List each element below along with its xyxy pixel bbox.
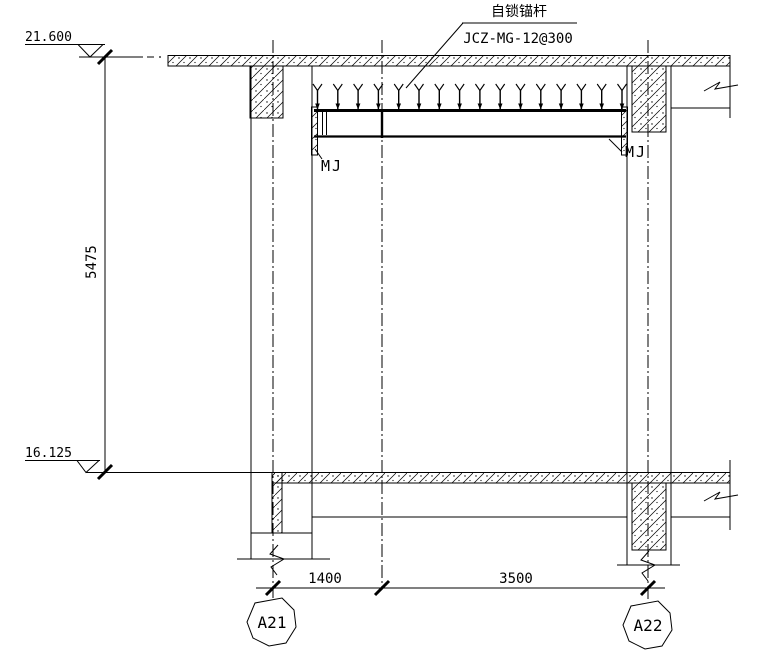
embed-plate-left	[312, 107, 318, 155]
grid-bubble-a21-label: A21	[258, 613, 287, 632]
grid-bubble-a21: A21	[247, 598, 296, 646]
right-downstand-bottom	[632, 483, 666, 550]
grid-bubble-a22-label: A22	[634, 616, 663, 635]
left-downstand	[250, 66, 283, 118]
anchor-name-label: 自锁锚杆	[491, 4, 547, 20]
drawing-sheet: 21.600 16.125 5475 1400 3500 A21 A22	[0, 0, 777, 652]
elevation-bottom-value: 16.125	[25, 446, 72, 461]
dimension-span-right: 3500	[499, 571, 533, 587]
grid-bubble-a22: A22	[623, 601, 672, 649]
right-downstand-top	[632, 66, 666, 132]
embed-plate-left-label: MJ	[321, 157, 343, 175]
vertical-dimension-value: 5475	[84, 245, 100, 279]
dimension-span-left: 1400	[308, 571, 342, 587]
section-detail-drawing: 21.600 16.125 5475 1400 3500 A21 A22	[0, 0, 777, 652]
anchor-spec-label: JCZ-MG-12@300	[463, 31, 573, 47]
embed-plate-right-label: MJ	[625, 143, 647, 161]
elevation-top-value: 21.600	[25, 30, 72, 45]
